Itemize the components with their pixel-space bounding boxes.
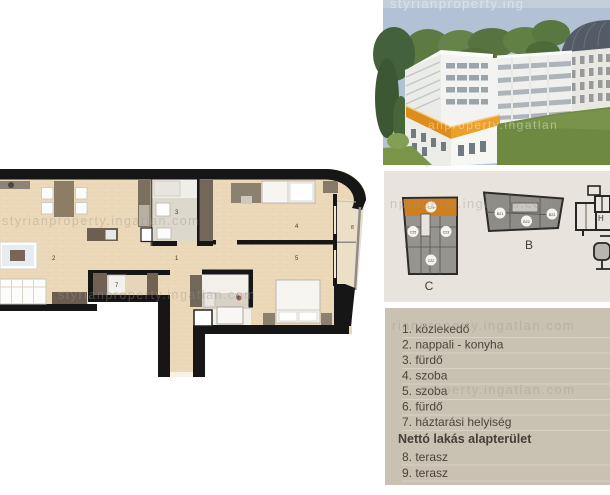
svg-text:9. terasz: 9. terasz [402,466,448,480]
svg-text:nproperty.ingatlan.com: nproperty.ingatlan.com [390,196,554,211]
svg-text:3. fürdő: 3. fürdő [402,353,443,367]
svg-text:B23: B23 [549,213,555,217]
svg-text:6. fürdő: 6. fürdő [402,400,443,414]
svg-text:8: 8 [351,225,354,231]
svg-text:8. terasz: 8. terasz [402,450,448,464]
svg-text:H: H [598,214,604,223]
svg-text:anproperty.ingatlan: anproperty.ingatlan [428,118,558,132]
svg-text:styrianproperty.ing: styrianproperty.ing [390,0,524,11]
svg-text:Nettó lakás alapterület: Nettó lakás alapterület [398,432,532,446]
svg-text:2. nappali - konyha: 2. nappali - konyha [402,338,504,352]
svg-text:B: B [525,238,533,252]
svg-text:C: C [425,279,434,293]
svg-text:7. háztarási helyiség: 7. háztarási helyiség [402,415,511,429]
svg-text:rianproperty.ingatlan.com: rianproperty.ingatlan.com [392,318,575,333]
svg-text:B22: B22 [523,220,529,224]
svg-text:4. szoba: 4. szoba [402,369,448,383]
svg-text:styrianproperty.ingatlan.com: styrianproperty.ingatlan.com [58,288,256,302]
svg-text:styrianproperty.ingatlan.com: styrianproperty.ingatlan.com [2,214,200,228]
svg-text:C22: C22 [428,259,435,263]
svg-text:B21: B21 [497,212,503,216]
svg-text:property.ingatlan.com: property.ingatlan.com [420,382,576,397]
svg-text:C23: C23 [443,231,450,235]
svg-text:C25: C25 [410,231,417,235]
